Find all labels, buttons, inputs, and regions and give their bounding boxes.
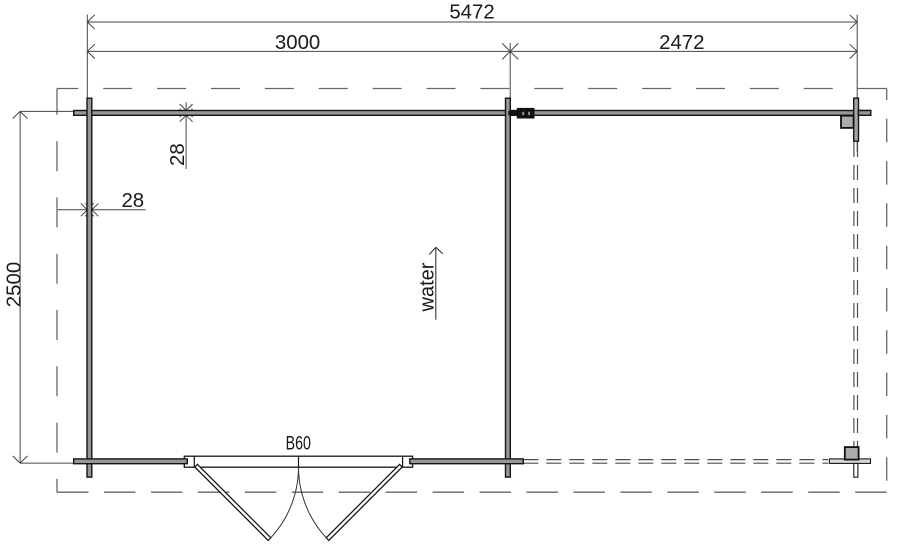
svg-text:2500: 2500 — [3, 262, 25, 307]
svg-text:3000: 3000 — [275, 32, 320, 54]
svg-text:water: water — [416, 262, 438, 312]
svg-text:28: 28 — [121, 190, 144, 212]
svg-text:2472: 2472 — [659, 32, 704, 54]
svg-text:B60: B60 — [286, 432, 311, 454]
svg-text:28: 28 — [167, 143, 189, 166]
svg-text:5472: 5472 — [449, 2, 494, 24]
